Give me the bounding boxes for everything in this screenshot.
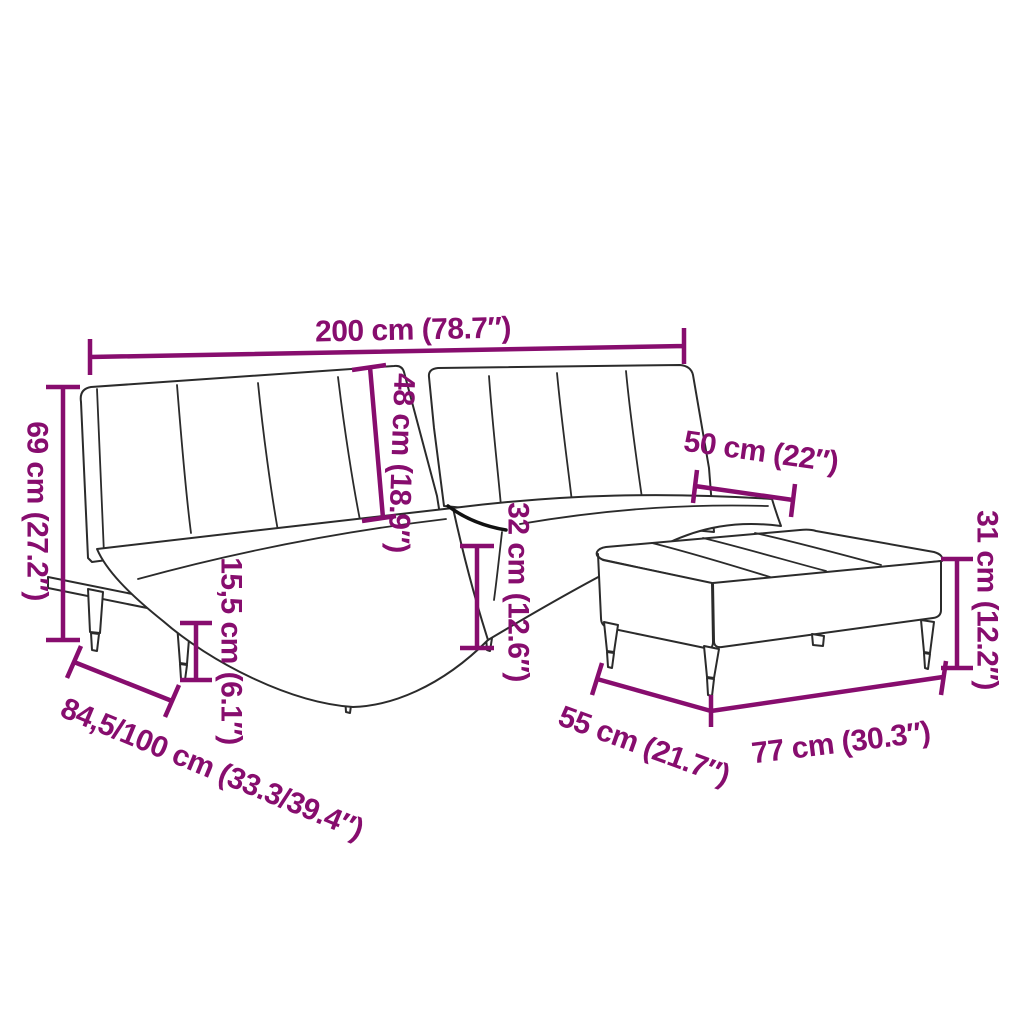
dim-backrest-height-label: 48 cm (18.9″) <box>381 373 420 554</box>
dim-ottoman-height-label: 31 cm (12.2″) <box>971 510 1004 690</box>
dim-leg-height-label: 15,5 cm (6.1″) <box>215 557 248 744</box>
dim-seat-height-label: 32 cm (12.6″) <box>502 502 535 682</box>
dim-sofa-height-label: 69 cm (27.2″) <box>21 421 54 601</box>
dim-sofa-width-label: 200 cm (78.7″) <box>315 311 511 348</box>
diagram-svg: 200 cm (78.7″) 69 cm (27.2″) 48 cm (18.9… <box>0 0 1024 1024</box>
product-dimension-diagram: 200 cm (78.7″) 69 cm (27.2″) 48 cm (18.9… <box>0 0 1024 1024</box>
